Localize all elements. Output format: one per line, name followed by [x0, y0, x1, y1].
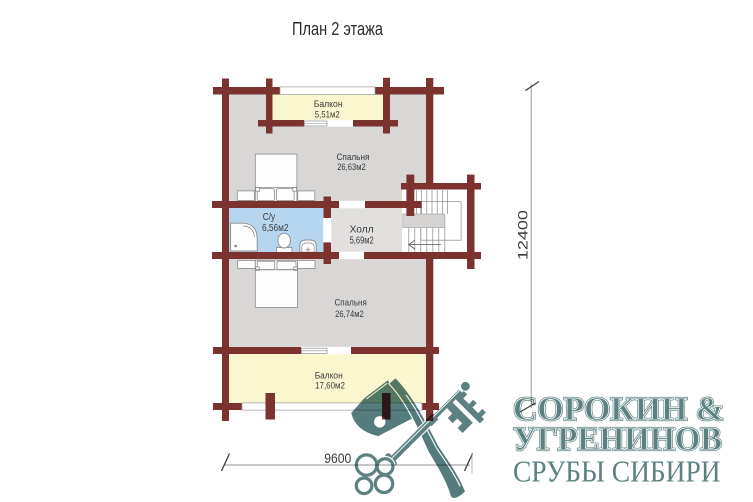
svg-text:Балкон: Балкон [314, 99, 343, 109]
svg-text:5,69м2: 5,69м2 [350, 236, 374, 247]
svg-text:26,74м2: 26,74м2 [335, 309, 364, 319]
svg-text:Спальня: Спальня [337, 152, 370, 162]
svg-text:Балкон: Балкон [315, 370, 343, 380]
svg-text:Холл: Холл [350, 224, 374, 236]
svg-text:СРУБЫ СИБИРИ: СРУБЫ СИБИРИ [513, 453, 721, 488]
svg-text:6,56м2: 6,56м2 [262, 223, 289, 234]
svg-text:Спальня: Спальня [335, 298, 367, 308]
svg-text:План 2 этажа: План 2 этажа [292, 19, 384, 39]
svg-text:УГРЕНИНОВ: УГРЕНИНОВ [513, 421, 722, 458]
svg-text:С/у: С/у [263, 211, 276, 223]
svg-text:5,51м2: 5,51м2 [315, 110, 340, 120]
svg-text:9600: 9600 [324, 450, 351, 466]
svg-text:12400: 12400 [515, 210, 531, 260]
svg-text:17,60м2: 17,60м2 [315, 381, 345, 391]
svg-text:26,63м2: 26,63м2 [337, 162, 366, 172]
